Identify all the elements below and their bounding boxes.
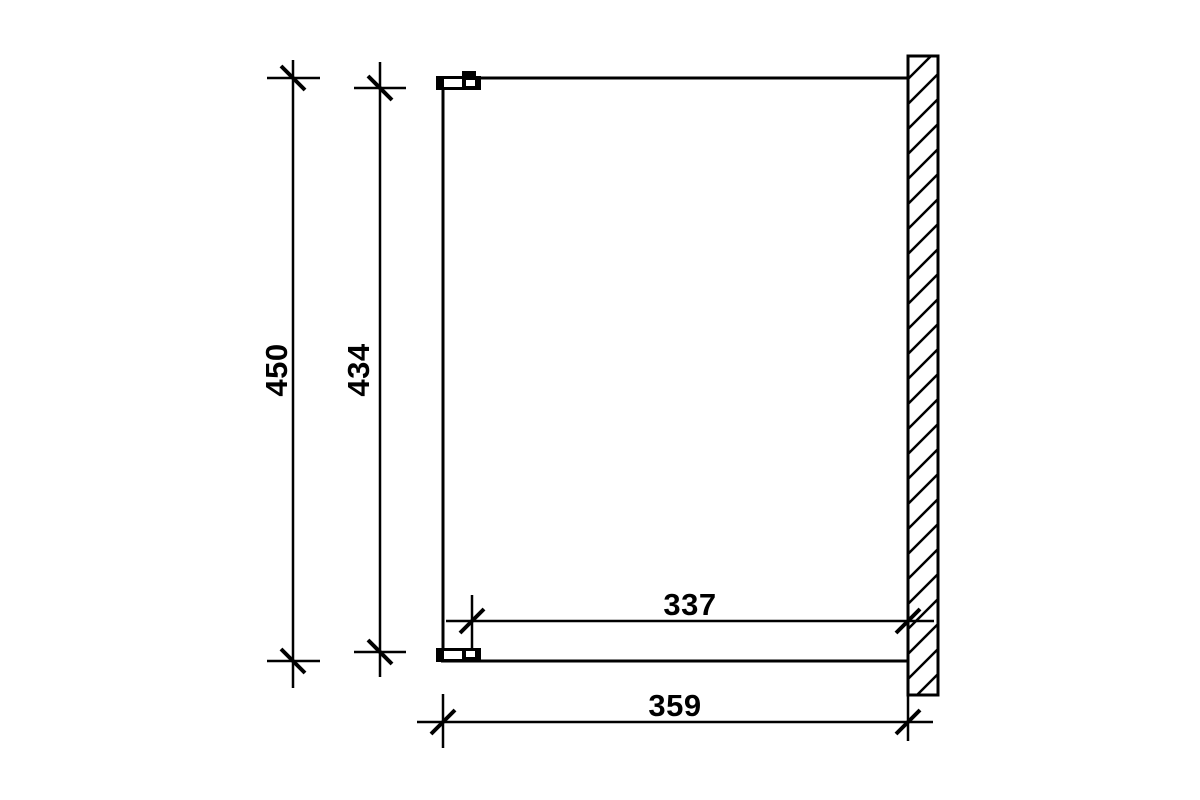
hatch-line: [908, 574, 938, 604]
hatch-line: [908, 399, 938, 429]
dimension-label-inner-depth: 337: [663, 587, 716, 622]
hatch-line: [908, 374, 938, 404]
hatch-line: [908, 99, 938, 129]
bracket-slot-large-top: [444, 79, 462, 87]
dimension-inner-depth: 337: [446, 587, 934, 648]
hatch-line: [908, 149, 938, 179]
bracket-slot-large-bottom: [444, 651, 462, 659]
hatch-line: [908, 474, 938, 504]
dimension-inner-height: 434: [341, 62, 406, 677]
hatch-line: [908, 449, 938, 479]
dimension-label-inner-height: 434: [341, 343, 376, 396]
hatch-line: [908, 199, 938, 229]
bracket-slot-small-bottom: [466, 651, 475, 657]
dimension-label-overall-depth: 359: [648, 688, 701, 723]
hatch-line: [908, 624, 938, 654]
dimension-label-overall-height: 450: [259, 343, 294, 396]
hatch-line: [908, 274, 938, 304]
canopy-outline: [441, 78, 908, 661]
hatch-line: [908, 299, 938, 329]
hatch-line: [908, 649, 938, 679]
hatch-line: [908, 224, 938, 254]
hatch-line: [908, 424, 938, 454]
dimension-overall-height: 450: [259, 60, 320, 688]
post-bracket-top: [436, 71, 481, 90]
hatch-line: [917, 674, 938, 695]
hatch-line: [908, 56, 931, 79]
post-bracket-bottom: [436, 648, 481, 662]
wall: [908, 56, 938, 695]
hatch-line: [908, 524, 938, 554]
hatch-line: [908, 499, 938, 529]
drawing-canvas: 450 434 337 359: [0, 0, 1200, 800]
hatch-line: [908, 124, 938, 154]
hatch-line: [908, 324, 938, 354]
hatch-line: [908, 549, 938, 579]
hatch-line: [908, 249, 938, 279]
hatch-line: [908, 74, 938, 104]
bracket-slot-small-top: [466, 80, 475, 86]
hatch-line: [908, 174, 938, 204]
dimension-overall-depth: 359: [417, 688, 933, 748]
hatch-line: [908, 349, 938, 379]
wall-hatch: [908, 56, 938, 695]
technical-drawing: 450 434 337 359: [0, 0, 1200, 800]
